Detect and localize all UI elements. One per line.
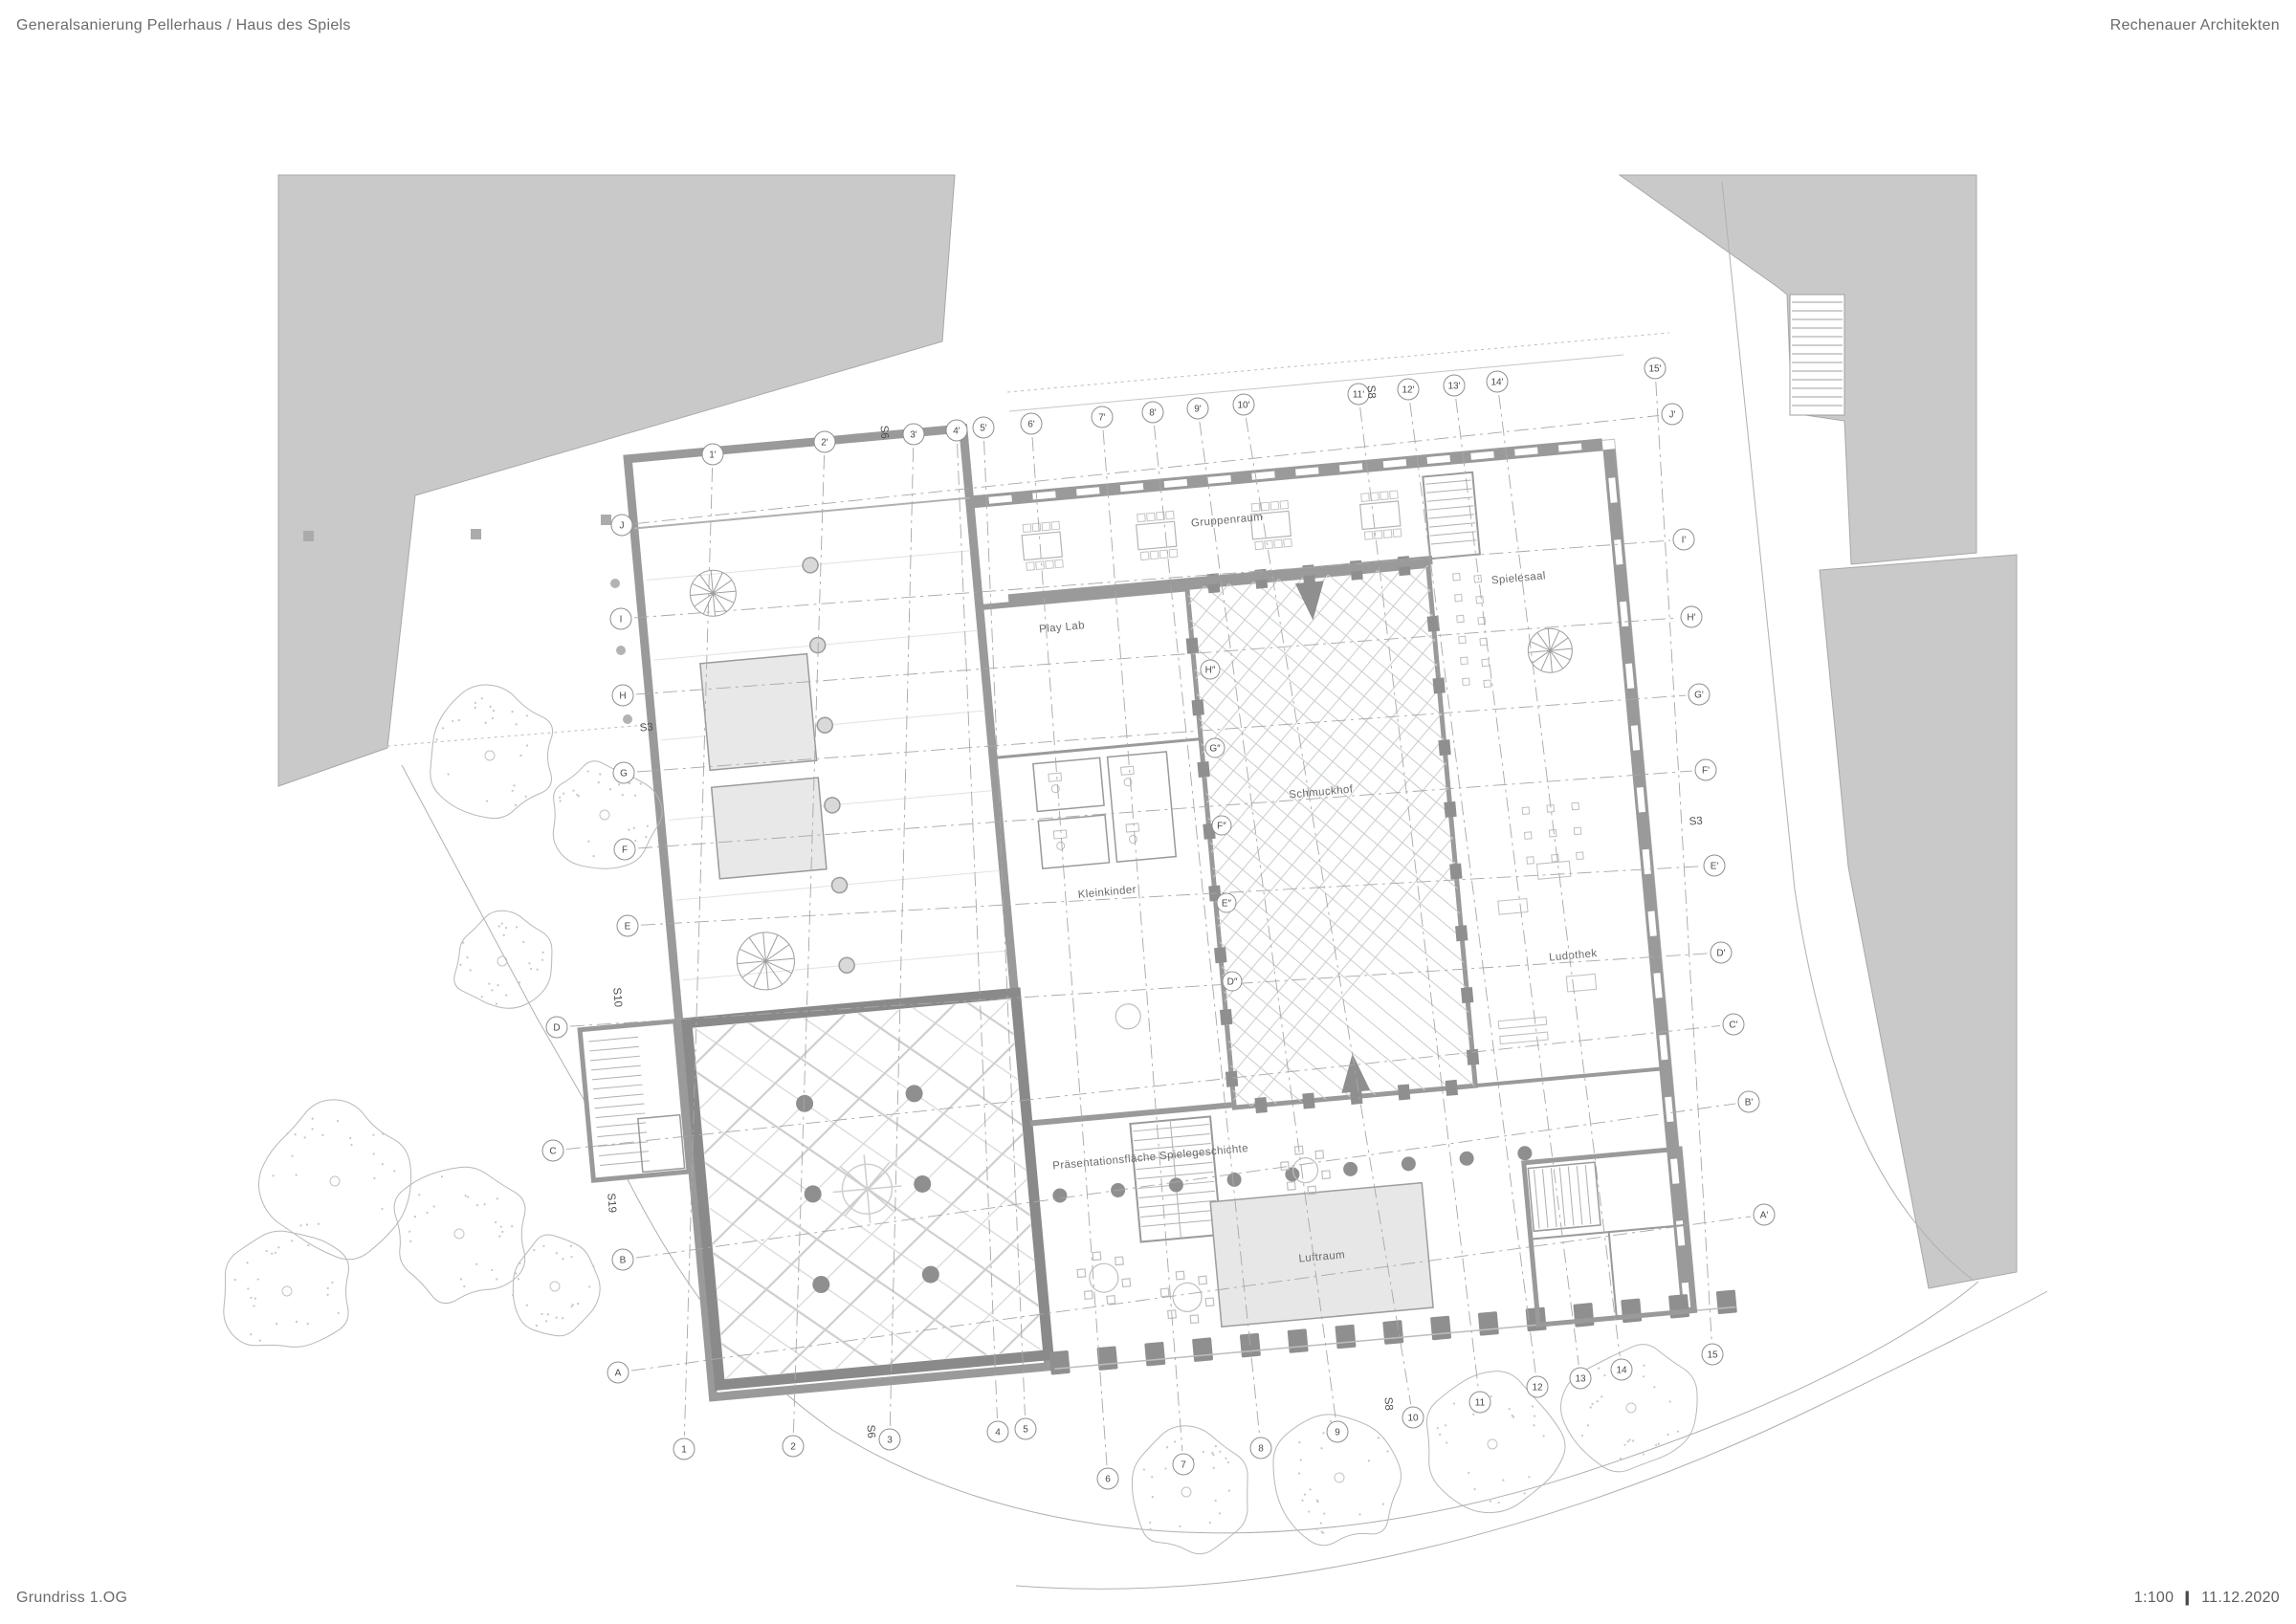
grid-bubble-label: 15 bbox=[1707, 1350, 1718, 1361]
grid-bubble-label: F″ bbox=[1217, 822, 1226, 832]
grid-bubble-label: 7 bbox=[1181, 1460, 1186, 1471]
grid-bubble: 10 bbox=[1402, 1407, 1424, 1428]
grid-bubble: D' bbox=[1711, 942, 1732, 963]
section-label: S10 bbox=[610, 987, 623, 1007]
grid-bubble-label: 2' bbox=[821, 438, 828, 449]
grid-bubble-label: E' bbox=[1711, 862, 1719, 872]
grid-bubble: I' bbox=[1673, 529, 1694, 550]
grid-bubble-label: 4' bbox=[953, 427, 960, 437]
architect-name: Rechenauer Architekten bbox=[2110, 17, 2280, 34]
grid-bubble: 12 bbox=[1527, 1376, 1548, 1397]
grid-bubble: 8 bbox=[1250, 1437, 1271, 1459]
grid-bubble-label: 9 bbox=[1335, 1428, 1340, 1438]
grid-bubble-label: 8' bbox=[1149, 408, 1157, 419]
grid-bubble-label: 5' bbox=[980, 424, 987, 434]
tree bbox=[512, 1235, 600, 1336]
tree bbox=[224, 1231, 349, 1347]
grid-bubble-label: E″ bbox=[1222, 899, 1232, 910]
section-label: S8 bbox=[1382, 1396, 1395, 1411]
grid-bubble-label: 7' bbox=[1098, 413, 1106, 424]
marker-square bbox=[303, 531, 314, 541]
grid-bubble: F' bbox=[1695, 759, 1716, 780]
separator-bar: | bbox=[2184, 1590, 2192, 1607]
section-label: S6 bbox=[878, 425, 891, 439]
grid-bubble: 6 bbox=[1097, 1468, 1118, 1489]
grid-bubble-label: 11' bbox=[1353, 390, 1364, 401]
grid-bubble-label: 11 bbox=[1475, 1398, 1486, 1409]
tree bbox=[430, 685, 553, 819]
grid-bubble: 15' bbox=[1645, 358, 1666, 379]
date-value: 11.12.2020 bbox=[2201, 1590, 2280, 1607]
grid-bubble: 4 bbox=[987, 1421, 1008, 1442]
grid-bubble-label: 3' bbox=[910, 430, 917, 441]
grid-bubble: 5 bbox=[1015, 1418, 1036, 1439]
grid-bubble: B bbox=[612, 1249, 633, 1270]
grid-bubble: 14 bbox=[1611, 1359, 1632, 1380]
grid-bubble: 9 bbox=[1327, 1421, 1348, 1442]
tree bbox=[454, 911, 552, 1008]
grid-bubble-label: 12' bbox=[1402, 385, 1414, 396]
grid-bubble-label: C' bbox=[1729, 1020, 1737, 1031]
west-room-lower bbox=[712, 778, 827, 879]
grid-bubble-label: G″ bbox=[1209, 744, 1221, 755]
marker-square bbox=[471, 529, 481, 539]
grid-bubble: 3 bbox=[879, 1429, 900, 1450]
grid-bubble: 10' bbox=[1233, 394, 1254, 415]
grid-bubble-label: 1' bbox=[709, 450, 717, 461]
marker-dot bbox=[616, 646, 626, 655]
grid-bubble: 2' bbox=[814, 431, 835, 452]
grid-bubble: 12' bbox=[1398, 379, 1419, 400]
grid-bubble: H bbox=[612, 685, 633, 706]
tree bbox=[394, 1167, 525, 1303]
grid-bubble-label: A' bbox=[1760, 1211, 1769, 1221]
grid-bubble: 9' bbox=[1187, 398, 1208, 419]
west-room-upper bbox=[700, 654, 817, 771]
property-dotted-line-west bbox=[387, 724, 658, 746]
grid-bubble: E″ bbox=[1217, 893, 1236, 912]
marker-dot bbox=[610, 579, 620, 588]
grid-bubble: 1 bbox=[673, 1438, 695, 1459]
grid-bubble: C' bbox=[1723, 1014, 1744, 1035]
grid-bubble-label: A bbox=[615, 1369, 622, 1379]
grid-bubble: I bbox=[610, 608, 631, 629]
grid-bubble: A' bbox=[1754, 1204, 1775, 1225]
grid-bubble: 15 bbox=[1702, 1344, 1723, 1365]
grid-bubble: 6' bbox=[1021, 413, 1042, 434]
drawing-title: Grundriss 1.OG bbox=[16, 1590, 127, 1607]
marker-square bbox=[601, 515, 611, 525]
grid-bubble: A bbox=[607, 1362, 629, 1383]
scale-value: 1:100 bbox=[2134, 1590, 2175, 1607]
grid-bubble-label: 9' bbox=[1194, 405, 1202, 415]
grid-bubble-label: H bbox=[619, 691, 626, 702]
grid-bubble: B' bbox=[1738, 1091, 1759, 1112]
grid-bubble: 1' bbox=[702, 444, 723, 465]
grid-bubble-label: J bbox=[620, 521, 625, 532]
section-label: S3 bbox=[1689, 815, 1703, 827]
grid-bubble: 8' bbox=[1142, 402, 1163, 423]
grid-bubble: C bbox=[542, 1140, 563, 1161]
grid-bubble-label: F' bbox=[1702, 766, 1710, 777]
grid-bubble-label: 8 bbox=[1258, 1444, 1264, 1455]
grid-bubble: F bbox=[614, 839, 635, 860]
grid-bubble: 2 bbox=[783, 1436, 804, 1457]
floor-plan-canvas: Gruppenraum Spielesaal Play Lab Kleinkin… bbox=[0, 0, 2296, 1624]
grid-bubble-label: 10 bbox=[1407, 1414, 1419, 1424]
grid-bubble-label: I bbox=[620, 615, 623, 625]
grid-bubble-label: 6' bbox=[1027, 420, 1035, 430]
grid-bubble-label: E bbox=[625, 922, 631, 933]
grid-bubble: 13 bbox=[1570, 1368, 1591, 1389]
grid-bubble-label: G' bbox=[1694, 691, 1704, 701]
property-dotted-line bbox=[1007, 333, 1669, 392]
scale-and-date: 1:100 | 11.12.2020 bbox=[2134, 1590, 2280, 1607]
section-label: S6 bbox=[865, 1424, 877, 1438]
section-label: S3 bbox=[639, 721, 653, 734]
marker-dot bbox=[623, 714, 632, 724]
grid-bubble-label: 2 bbox=[790, 1442, 796, 1453]
grid-bubble: G″ bbox=[1205, 738, 1225, 757]
grid-bubble-label: 6 bbox=[1105, 1475, 1111, 1485]
grid-bubble: E' bbox=[1704, 855, 1725, 876]
grid-bubble-label: 15' bbox=[1648, 364, 1661, 375]
grid-bubble-label: 14 bbox=[1616, 1366, 1627, 1376]
grid-bubble-label: 10' bbox=[1237, 401, 1249, 411]
grid-bubble: D″ bbox=[1223, 972, 1242, 991]
grid-bubble: 7' bbox=[1092, 406, 1113, 428]
grid-bubble: 14' bbox=[1487, 371, 1508, 392]
grid-bubble-label: B' bbox=[1745, 1098, 1754, 1108]
neighbour-block-east bbox=[1820, 555, 2017, 1288]
grid-bubble: E bbox=[617, 915, 638, 936]
grid-bubble: G' bbox=[1689, 684, 1710, 705]
grid-bubble-label: D″ bbox=[1227, 977, 1238, 988]
grid-bubble-label: 1 bbox=[681, 1445, 687, 1456]
grid-bubble: H″ bbox=[1201, 660, 1220, 679]
grid-bubble-label: 13 bbox=[1575, 1374, 1586, 1385]
grid-bubble-label: C bbox=[549, 1147, 556, 1157]
grid-bubble: 7 bbox=[1173, 1454, 1194, 1475]
grid-bubble: F″ bbox=[1212, 816, 1231, 835]
grid-bubble-label: 3 bbox=[887, 1436, 893, 1446]
tree bbox=[553, 761, 662, 868]
grid-bubble: 3' bbox=[903, 424, 924, 445]
grid-bubble-label: 13' bbox=[1447, 382, 1460, 392]
grid-bubble: 4' bbox=[946, 420, 967, 441]
project-title: Generalsanierung Pellerhaus / Haus des S… bbox=[16, 17, 351, 34]
west-annex-stair bbox=[580, 1021, 689, 1180]
vaulted-hall bbox=[687, 993, 1049, 1385]
grid-bubble-label: G bbox=[620, 769, 628, 779]
grid-bubble-label: D' bbox=[1716, 949, 1725, 959]
grid-bubble: 11 bbox=[1469, 1392, 1490, 1413]
section-label: S8 bbox=[1365, 384, 1378, 399]
grid-bubble-label: I' bbox=[1682, 536, 1687, 546]
grid-bubble-label: H' bbox=[1687, 613, 1695, 624]
section-label: S19 bbox=[605, 1193, 617, 1213]
grid-bubble-label: D bbox=[553, 1023, 560, 1034]
grid-bubble-label: H″ bbox=[1205, 666, 1216, 676]
grid-bubble-label: J' bbox=[1669, 410, 1676, 421]
grid-bubble: D bbox=[546, 1017, 567, 1038]
grid-bubble-label: 12 bbox=[1532, 1383, 1543, 1394]
grid-bubble-label: 4 bbox=[995, 1428, 1001, 1438]
tree bbox=[258, 1100, 410, 1260]
grid-bubble: 5' bbox=[973, 417, 994, 438]
grid-bubble: J bbox=[611, 515, 632, 536]
grid-bubble-label: 5 bbox=[1023, 1425, 1028, 1436]
tree bbox=[1132, 1426, 1247, 1554]
grid-bubble: H' bbox=[1681, 606, 1702, 627]
grid-bubble-label: F bbox=[622, 845, 628, 856]
grid-bubble: G bbox=[613, 762, 634, 783]
grid-bubble: 13' bbox=[1444, 375, 1465, 396]
grid-bubble: J' bbox=[1662, 404, 1683, 425]
grid-bubble-label: B bbox=[620, 1256, 627, 1266]
grid-bubble-label: 14' bbox=[1490, 378, 1503, 388]
neighbour-outline bbox=[1009, 355, 1623, 411]
